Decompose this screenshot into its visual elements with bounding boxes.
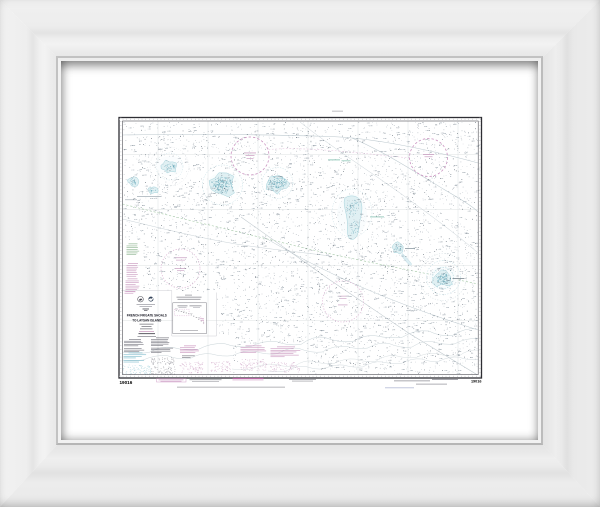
svg-text:19016: 19016 (471, 380, 482, 384)
svg-text:19016: 19016 (120, 380, 133, 385)
svg-text:TO LAYSAN ISLAND: TO LAYSAN ISLAND (132, 317, 161, 322)
